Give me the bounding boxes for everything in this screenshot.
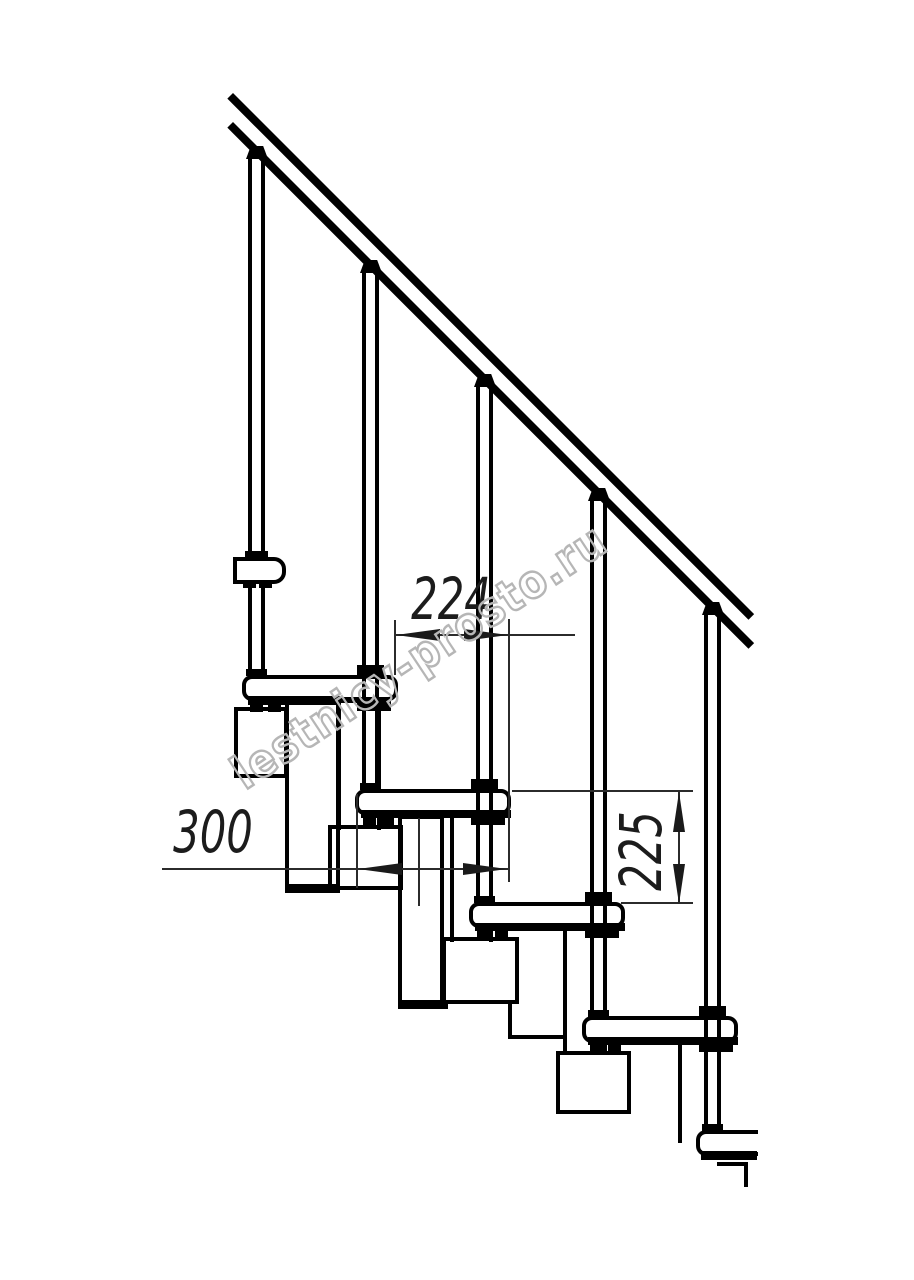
baluster-base xyxy=(474,896,495,903)
module-box-2 xyxy=(328,825,403,890)
tread-3-foot xyxy=(363,818,376,825)
dim-riser-label: 225 xyxy=(607,811,675,891)
dim-depth-label: 300 xyxy=(173,798,253,866)
baluster-clamp xyxy=(585,927,619,938)
baluster-base xyxy=(702,1124,723,1131)
module-hidden-edge xyxy=(418,814,420,906)
dim-riser-ext-top xyxy=(512,790,693,792)
landing-bracket-collar xyxy=(245,551,268,560)
dim-depth-line xyxy=(162,868,509,870)
module-box-4 xyxy=(556,1051,631,1114)
baluster-1 xyxy=(248,155,265,672)
tread-4-foot xyxy=(495,931,508,938)
dim-going-ext-right xyxy=(508,619,510,882)
module-column-4-edge xyxy=(678,1040,682,1143)
baluster-collar xyxy=(699,1006,726,1020)
tread-5-foot xyxy=(608,1045,621,1052)
baluster-base xyxy=(360,783,381,790)
landing-bracket-foot xyxy=(259,580,272,588)
tread-5-foot xyxy=(590,1045,603,1052)
module-connector-3 xyxy=(508,1002,567,1039)
tread-6-band xyxy=(701,1151,757,1160)
baluster-collar xyxy=(471,779,498,793)
baluster-base xyxy=(588,1010,609,1017)
tread-3-foot xyxy=(381,818,394,825)
tread-6-bracket-line xyxy=(744,1162,748,1187)
dim-depth-arrow-right xyxy=(463,863,507,875)
dim-depth-arrow-left xyxy=(358,863,402,875)
staircase-drawing: 224 300 225 lestnicy-prosto.ru xyxy=(0,0,914,1280)
baluster-base xyxy=(246,669,267,676)
baluster-clamp xyxy=(699,1041,733,1052)
tread-4-foot xyxy=(477,931,490,938)
module-connector-2 xyxy=(398,815,444,1008)
tread-2-foot xyxy=(268,705,281,712)
tread-2-foot xyxy=(250,705,263,712)
watermark-text: lestnicy-prosto.ru xyxy=(222,514,615,798)
baluster-collar xyxy=(585,892,612,906)
landing-bracket-foot xyxy=(243,580,256,588)
module-box-3 xyxy=(442,937,519,1004)
module-connector-2-foot xyxy=(398,1000,448,1009)
baluster-clamp xyxy=(471,814,505,825)
